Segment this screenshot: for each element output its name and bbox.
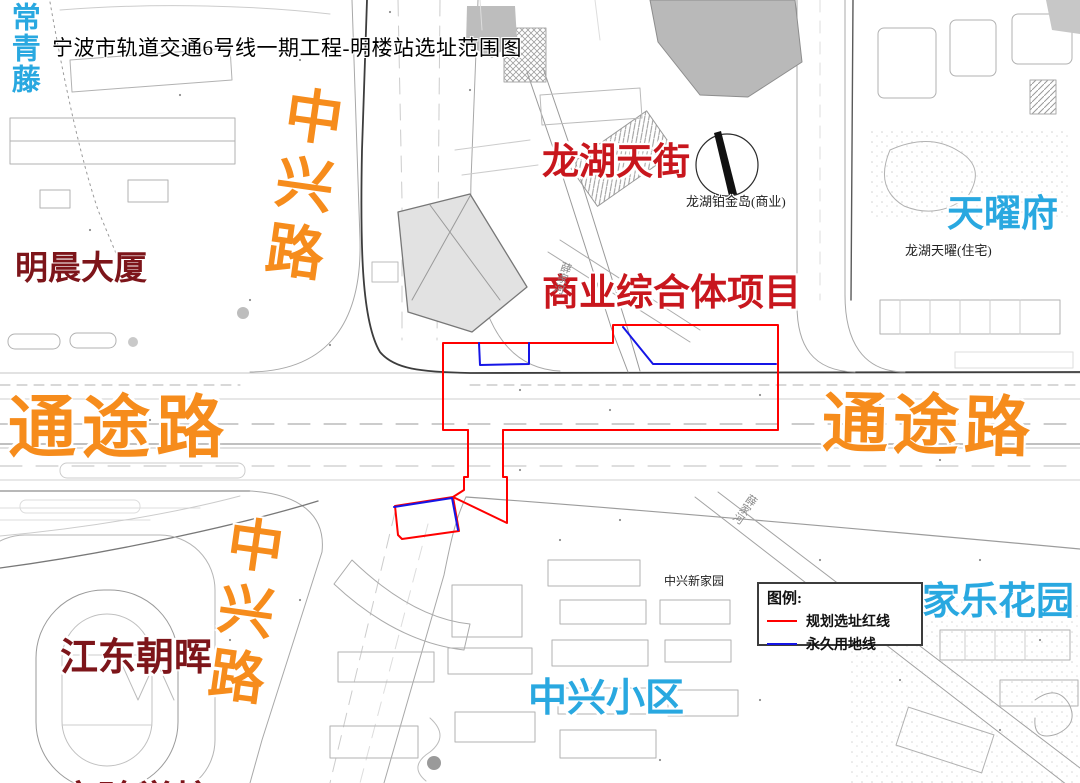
legend-item-permanent-land-line: 永久用地线 [767, 634, 915, 654]
place-label-tianyaofu: 天曜府 [947, 192, 1058, 236]
legend-blue-line-sample [767, 643, 797, 645]
place-label-school-line2: 实验学校 [60, 778, 212, 783]
place-label-jiale-garden: 家乐花园 [922, 580, 1074, 625]
road-label-tongtu-right: 通途路 [821, 384, 1036, 467]
project-label-longhu-line2: 商业综合体项目 [542, 271, 801, 315]
place-label-school: 江东朝晖 实验学校 [60, 539, 212, 783]
project-label-longhu-line1: 龙湖天街 [542, 140, 801, 184]
place-label-school-line1: 江东朝晖 [60, 635, 212, 683]
legend: 图例: 规划选址红线 永久用地线 [757, 582, 923, 646]
place-label-zhongxing-estate: 中兴小区 [528, 676, 684, 722]
road-label-tongtu-left: 通途路 [8, 388, 230, 468]
map-title: 宁波市轨道交通6号线一期工程-明楼站选址范围图 [52, 36, 522, 61]
legend-red-line-sample [767, 620, 797, 622]
place-label-changqingteng: 常青藤 [6, 2, 40, 95]
legend-item-planning-red-line: 规划选址红线 [767, 611, 915, 631]
legend-blue-line-label: 永久用地线 [806, 634, 876, 654]
site-selection-map: 宁波市轨道交通6号线一期工程-明楼站选址范围图 常青藤 中兴路 龙湖天街 商业综… [0, 0, 1080, 783]
legend-title: 图例: [767, 587, 915, 608]
anno-longhu-tianyao-residential: 龙湖天曜(住宅) [905, 243, 992, 258]
anno-longhu-platinum-island: 龙湖铂金岛(商业) [686, 194, 786, 209]
project-label-longhu: 龙湖天街 商业综合体项目 [542, 53, 801, 402]
anno-zhongxing-new-home: 中兴新家园 [664, 574, 724, 588]
place-label-mingchen-tower: 明晨大厦 [15, 249, 147, 288]
legend-red-line-label: 规划选址红线 [806, 611, 890, 631]
